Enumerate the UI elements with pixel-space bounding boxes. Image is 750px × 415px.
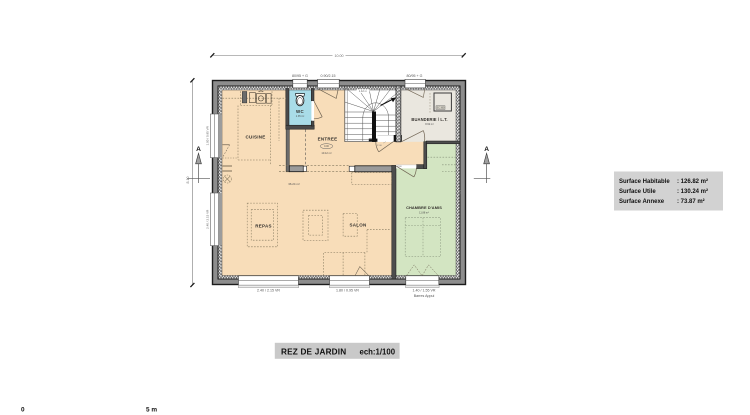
svg-text:80/95 + G: 80/95 + G xyxy=(407,74,423,78)
svg-text:SALON: SALON xyxy=(350,223,367,228)
svg-text:Surface Utile: Surface Utile xyxy=(619,189,656,195)
svg-text:REZ DE JARDIN: REZ DE JARDIN xyxy=(281,348,346,357)
svg-text:0.00: 0.00 xyxy=(324,145,329,148)
svg-text:WC: WC xyxy=(296,109,304,114)
svg-text:REPAS: REPAS xyxy=(255,223,271,228)
svg-text:1.35 m²: 1.35 m² xyxy=(296,115,305,118)
svg-text:CUISINE: CUISINE xyxy=(245,134,265,139)
svg-text:0.90/2.15: 0.90/2.15 xyxy=(321,74,336,78)
svg-text:10.12 m²: 10.12 m² xyxy=(321,151,331,155)
svg-text:5 m: 5 m xyxy=(146,407,157,414)
svg-text:1.40 / 1.55 VR: 1.40 / 1.55 VR xyxy=(413,289,436,293)
svg-text:: 130.24 m²: : 130.24 m² xyxy=(677,188,708,195)
svg-text:Barres Appui: Barres Appui xyxy=(414,294,435,298)
svg-text:1.80 / 0.95 VR: 1.80 / 0.95 VR xyxy=(336,289,359,293)
svg-text:8.62 m²: 8.62 m² xyxy=(425,123,434,126)
svg-text:80/95 + G: 80/95 + G xyxy=(292,74,308,78)
svg-text:A: A xyxy=(196,146,201,153)
svg-text:2.40 / 2.15 VR: 2.40 / 2.15 VR xyxy=(206,209,210,229)
svg-text:2.40 / 2.15 VR: 2.40 / 2.15 VR xyxy=(257,289,280,293)
svg-text:ech:1/100: ech:1/100 xyxy=(360,348,396,357)
svg-text:11.88 m²: 11.88 m² xyxy=(419,212,429,215)
svg-text:10.00: 10.00 xyxy=(335,54,344,58)
svg-text:Surface Annexe: Surface Annexe xyxy=(619,199,665,205)
svg-text:Surface Habitable: Surface Habitable xyxy=(619,179,670,185)
svg-text:: 73.87 m²: : 73.87 m² xyxy=(677,198,705,205)
svg-text:P. 80: P. 80 xyxy=(377,145,383,147)
svg-text:SC 360: SC 360 xyxy=(437,108,445,110)
svg-text:1.42 m: 1.42 m xyxy=(359,89,368,93)
svg-text:A: A xyxy=(484,146,489,153)
svg-text:ENTREE: ENTREE xyxy=(318,136,338,141)
svg-text:: 126.82 m²: : 126.82 m² xyxy=(677,178,708,185)
svg-text:CHAMBRE D'AMIS: CHAMBRE D'AMIS xyxy=(406,205,442,210)
svg-text:BUANDERIE / L.T.: BUANDERIE / L.T. xyxy=(411,117,447,122)
svg-text:1.00 / 0.95 VR: 1.00 / 0.95 VR xyxy=(206,125,210,145)
svg-text:0: 0 xyxy=(21,407,25,414)
svg-text:36.24 m²: 36.24 m² xyxy=(288,182,299,186)
svg-text:8.10: 8.10 xyxy=(186,177,190,184)
